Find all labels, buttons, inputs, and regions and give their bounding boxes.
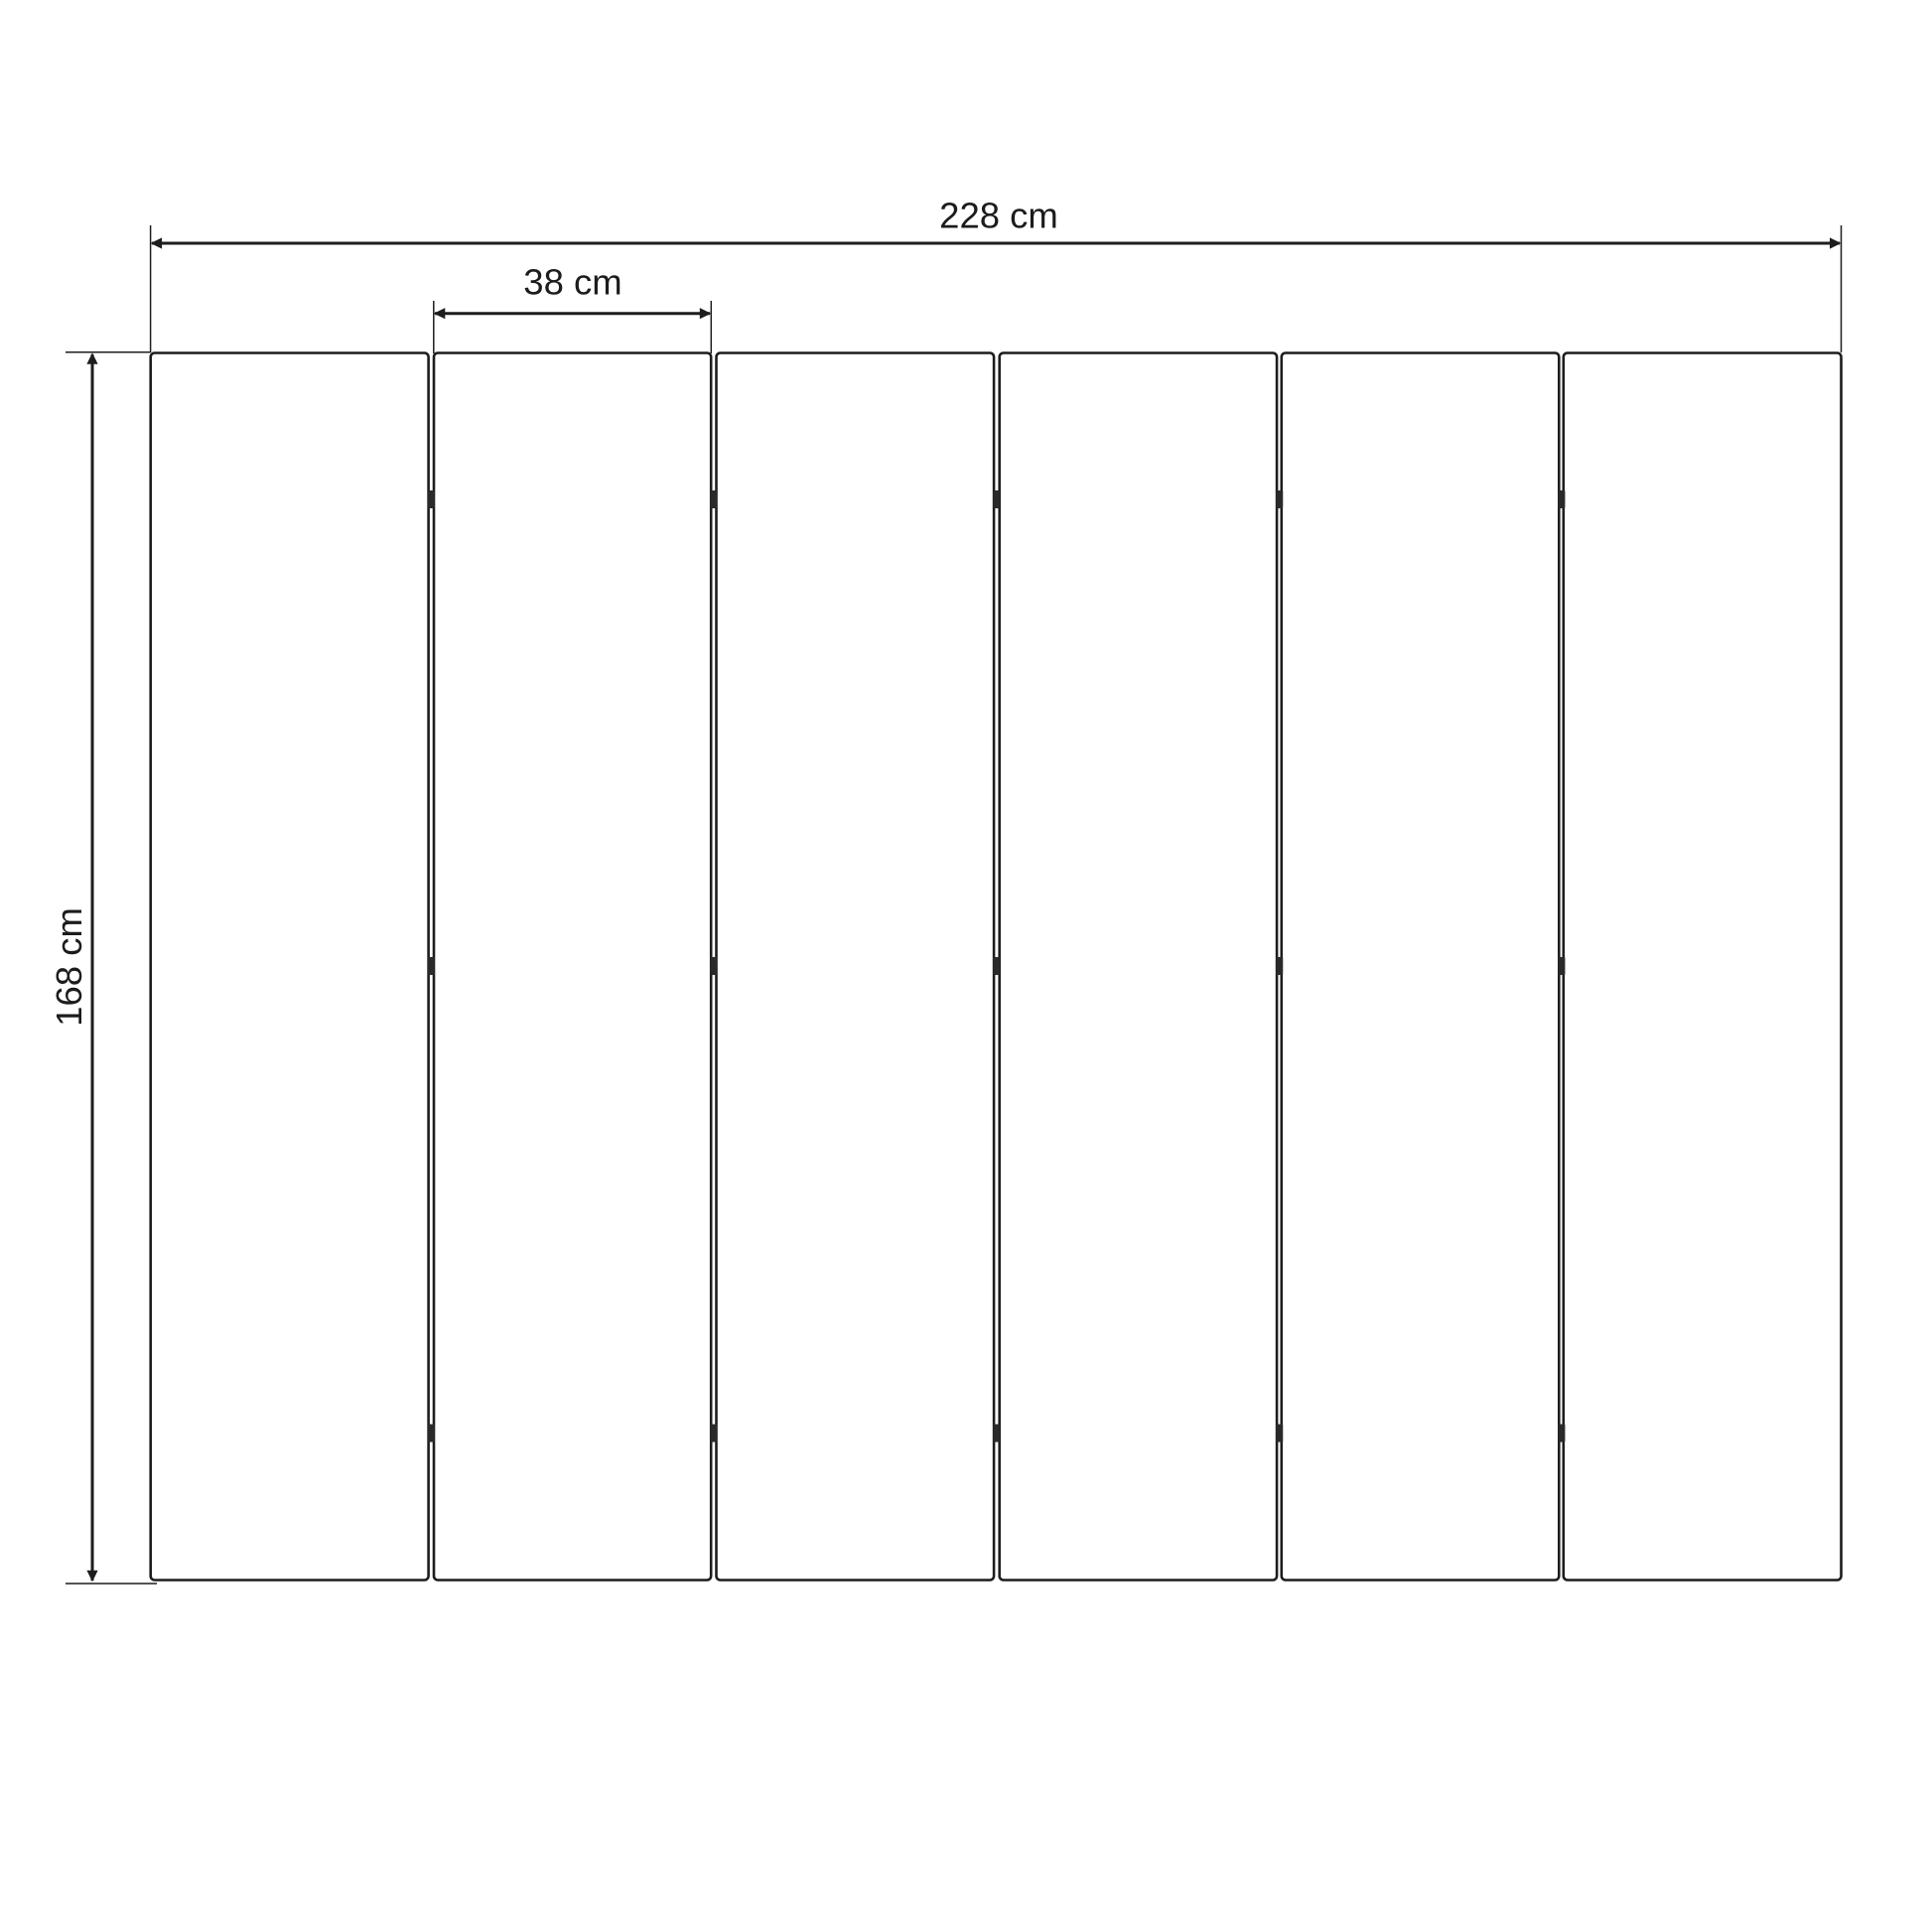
svg-text:168 cm: 168 cm — [49, 907, 89, 1027]
svg-text:228 cm: 228 cm — [939, 196, 1058, 236]
svg-text:38 cm: 38 cm — [523, 262, 621, 303]
